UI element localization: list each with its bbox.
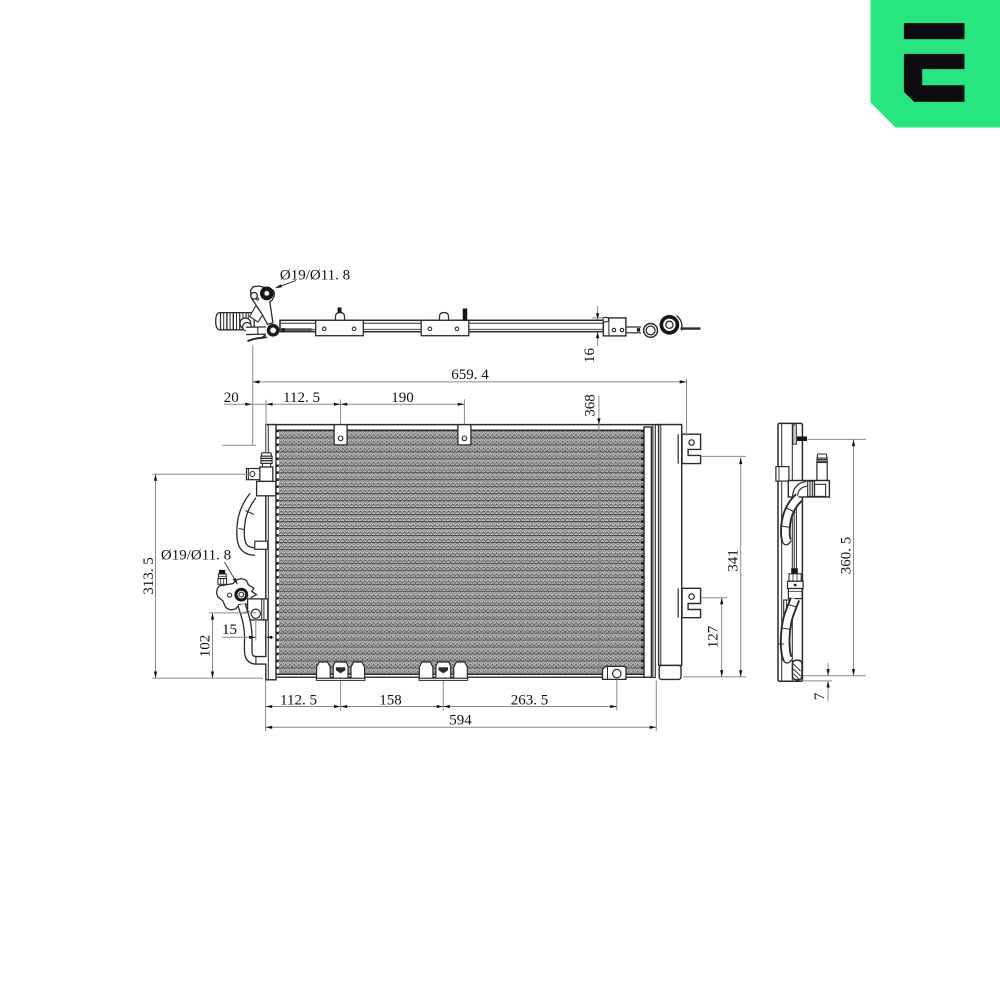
svg-text:112. 5: 112. 5	[283, 390, 320, 406]
svg-text:16: 16	[582, 348, 598, 364]
svg-text:368: 368	[583, 394, 599, 417]
svg-text:20: 20	[224, 390, 239, 406]
svg-text:127: 127	[706, 625, 722, 648]
svg-text:Ø19/Ø11. 8: Ø19/Ø11. 8	[280, 268, 350, 284]
svg-text:112. 5: 112. 5	[280, 692, 317, 708]
svg-text:Ø19/Ø11. 8: Ø19/Ø11. 8	[161, 548, 231, 564]
svg-text:7: 7	[812, 692, 828, 700]
svg-text:594: 594	[449, 713, 472, 729]
svg-text:313. 5: 313. 5	[141, 557, 157, 595]
svg-text:263. 5: 263. 5	[511, 692, 549, 708]
svg-text:659. 4: 659. 4	[451, 367, 489, 383]
svg-text:15: 15	[222, 622, 237, 638]
svg-text:360. 5: 360. 5	[838, 537, 854, 575]
svg-text:102: 102	[197, 635, 213, 658]
svg-text:190: 190	[391, 390, 414, 406]
svg-text:158: 158	[379, 692, 402, 708]
svg-text:341: 341	[726, 549, 742, 572]
